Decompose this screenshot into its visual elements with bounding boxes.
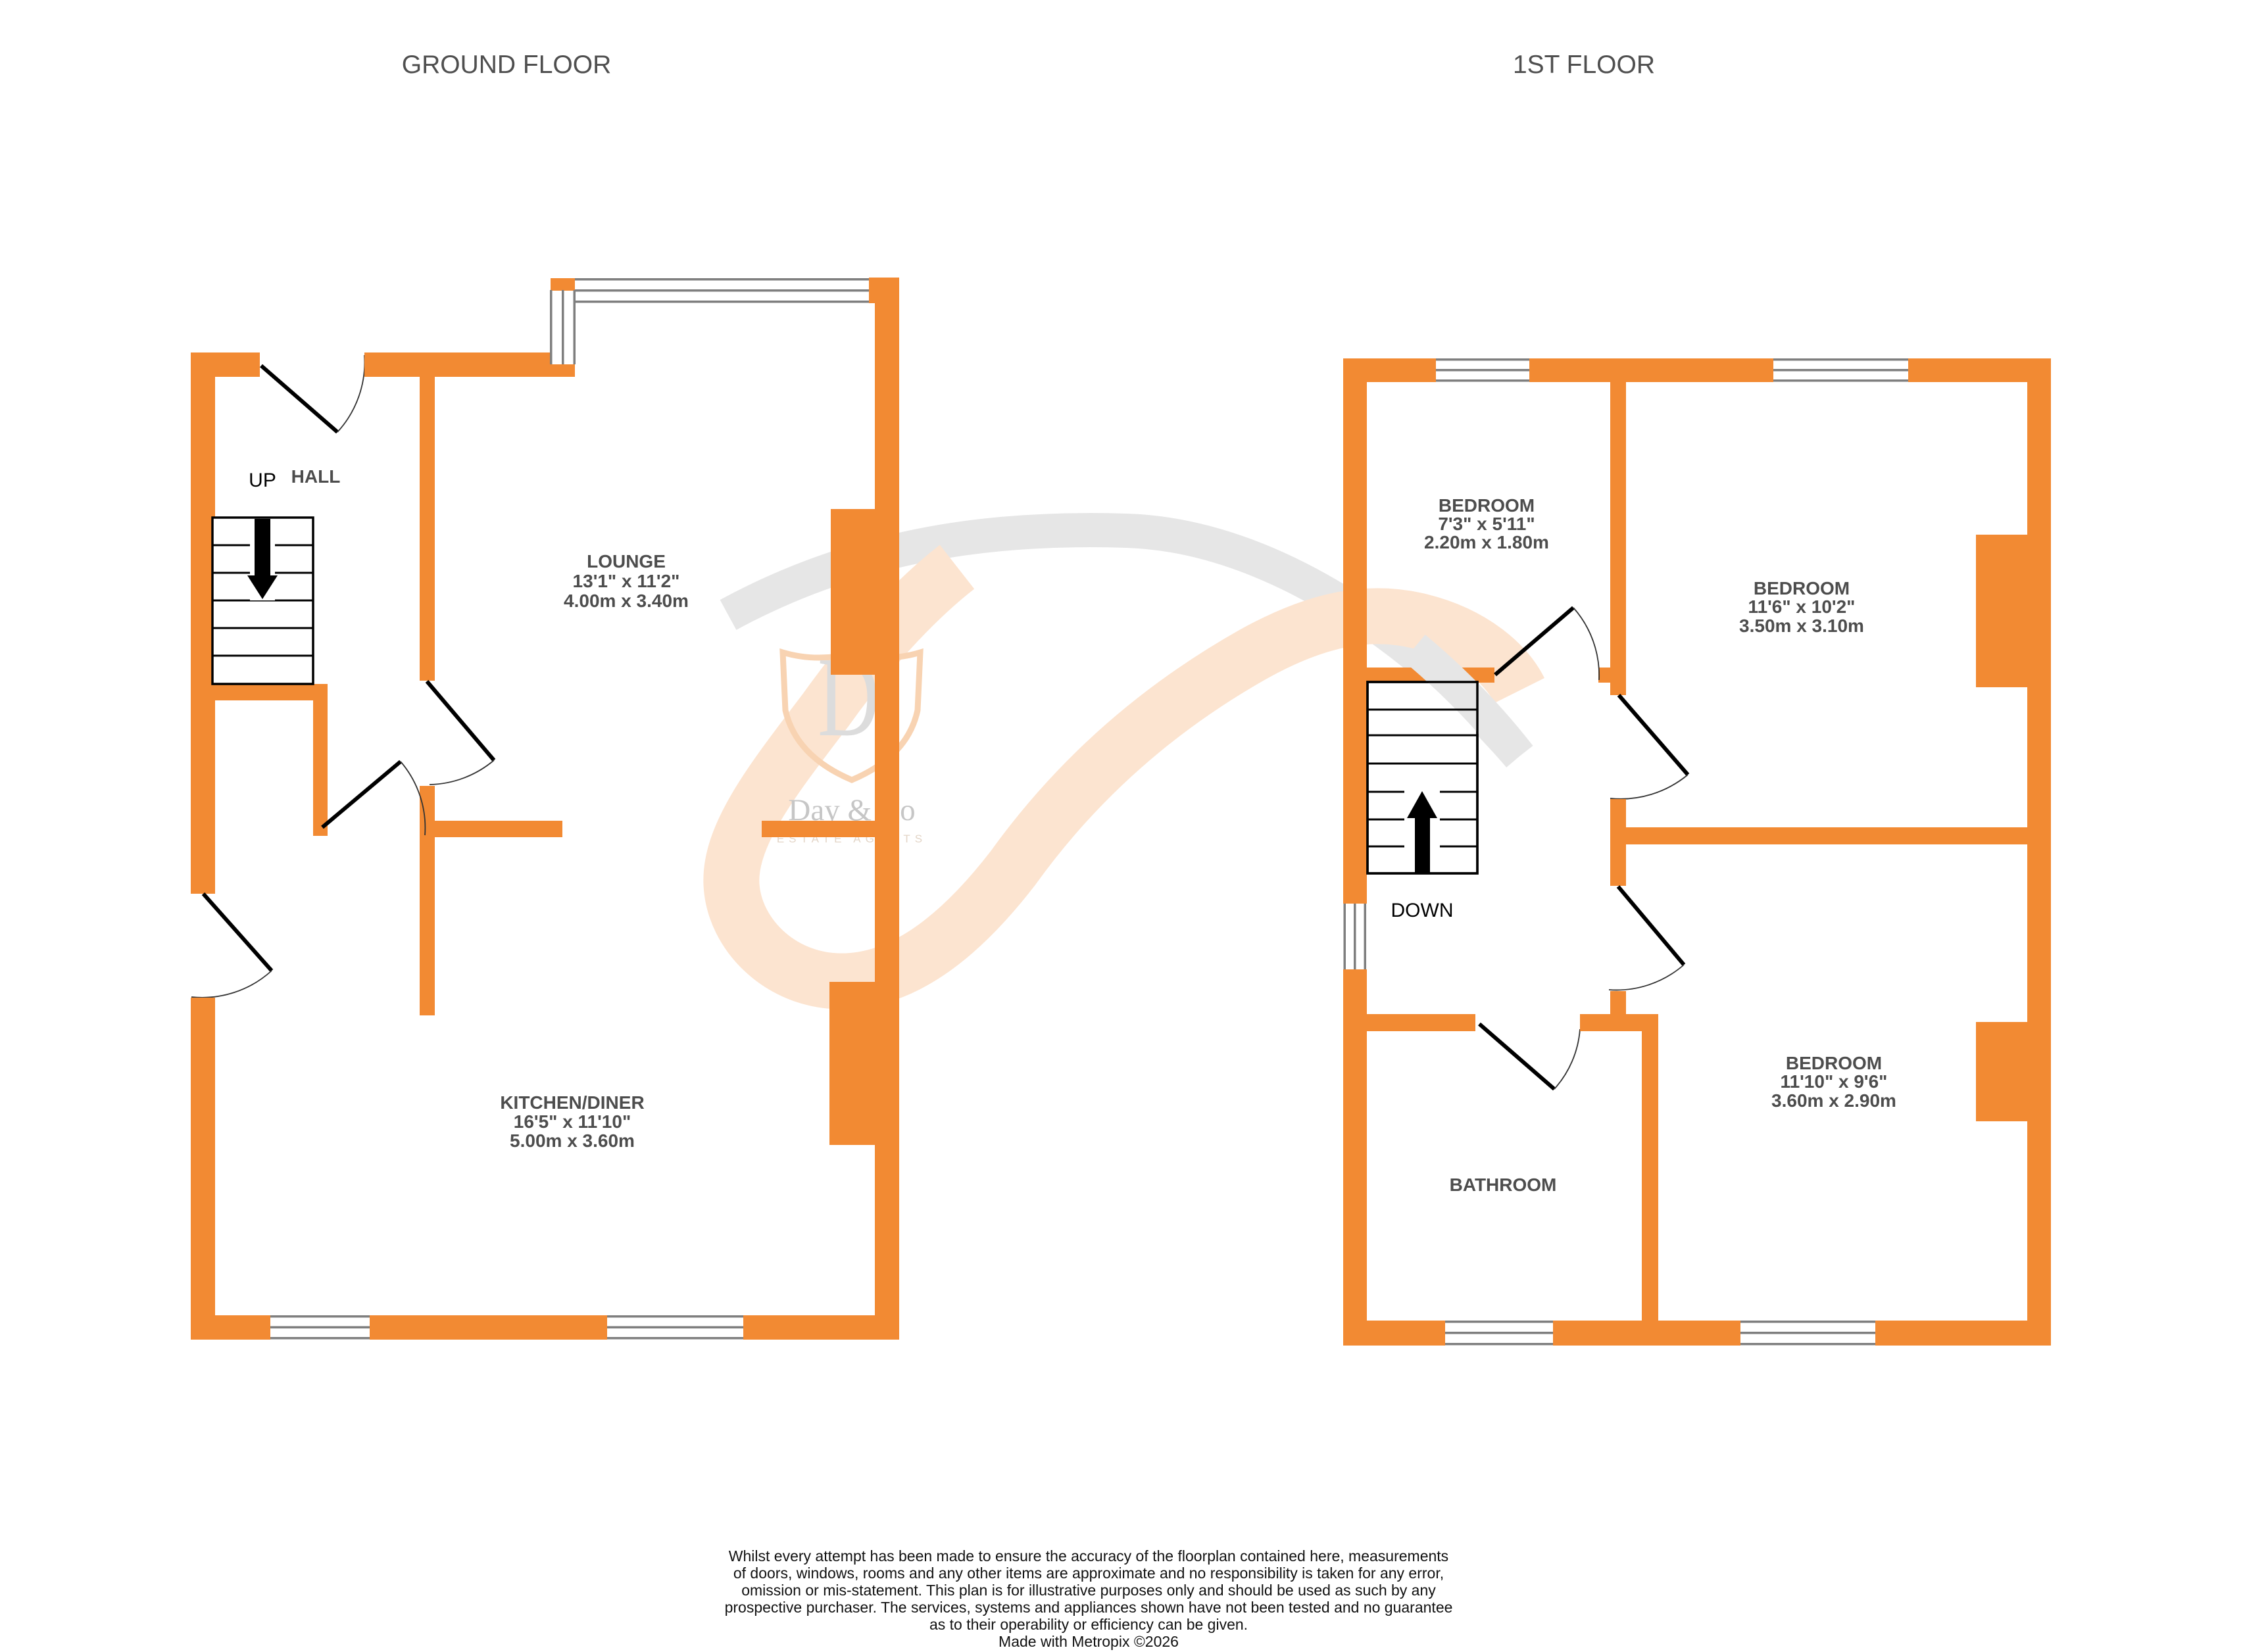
svg-text:BATHROOM: BATHROOM bbox=[1450, 1175, 1557, 1195]
svg-text:1ST FLOOR: 1ST FLOOR bbox=[1513, 51, 1655, 79]
svg-text:13'1" x 11'2": 13'1" x 11'2" bbox=[573, 571, 680, 591]
svg-text:BEDROOM: BEDROOM bbox=[1439, 495, 1535, 516]
svg-text:of doors, windows, rooms and a: of doors, windows, rooms and any other i… bbox=[733, 1565, 1444, 1582]
svg-text:DOWN: DOWN bbox=[1391, 900, 1454, 921]
svg-text:as to their operability or eff: as to their operability or efficiency ca… bbox=[929, 1616, 1248, 1633]
svg-text:UP: UP bbox=[249, 470, 276, 491]
svg-text:LOUNGE: LOUNGE bbox=[587, 551, 666, 571]
svg-text:5.00m x 3.60m: 5.00m x 3.60m bbox=[510, 1130, 635, 1151]
svg-text:16'5" x 11'10": 16'5" x 11'10" bbox=[514, 1111, 631, 1132]
svg-text:11'10" x 9'6": 11'10" x 9'6" bbox=[1781, 1071, 1888, 1092]
svg-text:Made with Metropix ©2026: Made with Metropix ©2026 bbox=[998, 1633, 1179, 1650]
svg-text:BEDROOM: BEDROOM bbox=[1754, 578, 1850, 598]
svg-text:3.50m x 3.10m: 3.50m x 3.10m bbox=[1739, 616, 1864, 636]
svg-text:prospective purchaser. The ser: prospective purchaser. The services, sys… bbox=[725, 1599, 1453, 1616]
svg-text:7'3" x 5'11": 7'3" x 5'11" bbox=[1438, 514, 1535, 534]
svg-text:11'6" x 10'2": 11'6" x 10'2" bbox=[1748, 596, 1856, 617]
svg-text:3.60m x 2.90m: 3.60m x 2.90m bbox=[1771, 1090, 1896, 1111]
svg-text:BEDROOM: BEDROOM bbox=[1786, 1053, 1882, 1073]
svg-text:omission or mis-statement. Thi: omission or mis-statement. This plan is … bbox=[741, 1582, 1436, 1599]
svg-text:4.00m x 3.40m: 4.00m x 3.40m bbox=[564, 591, 689, 611]
svg-text:HALL: HALL bbox=[291, 466, 341, 487]
svg-text:GROUND FLOOR: GROUND FLOOR bbox=[402, 51, 612, 79]
svg-text:Whilst every attempt has been: Whilst every attempt has been made to en… bbox=[729, 1547, 1448, 1565]
svg-text:KITCHEN/DINER: KITCHEN/DINER bbox=[500, 1092, 644, 1113]
svg-text:2.20m x 1.80m: 2.20m x 1.80m bbox=[1424, 532, 1549, 552]
